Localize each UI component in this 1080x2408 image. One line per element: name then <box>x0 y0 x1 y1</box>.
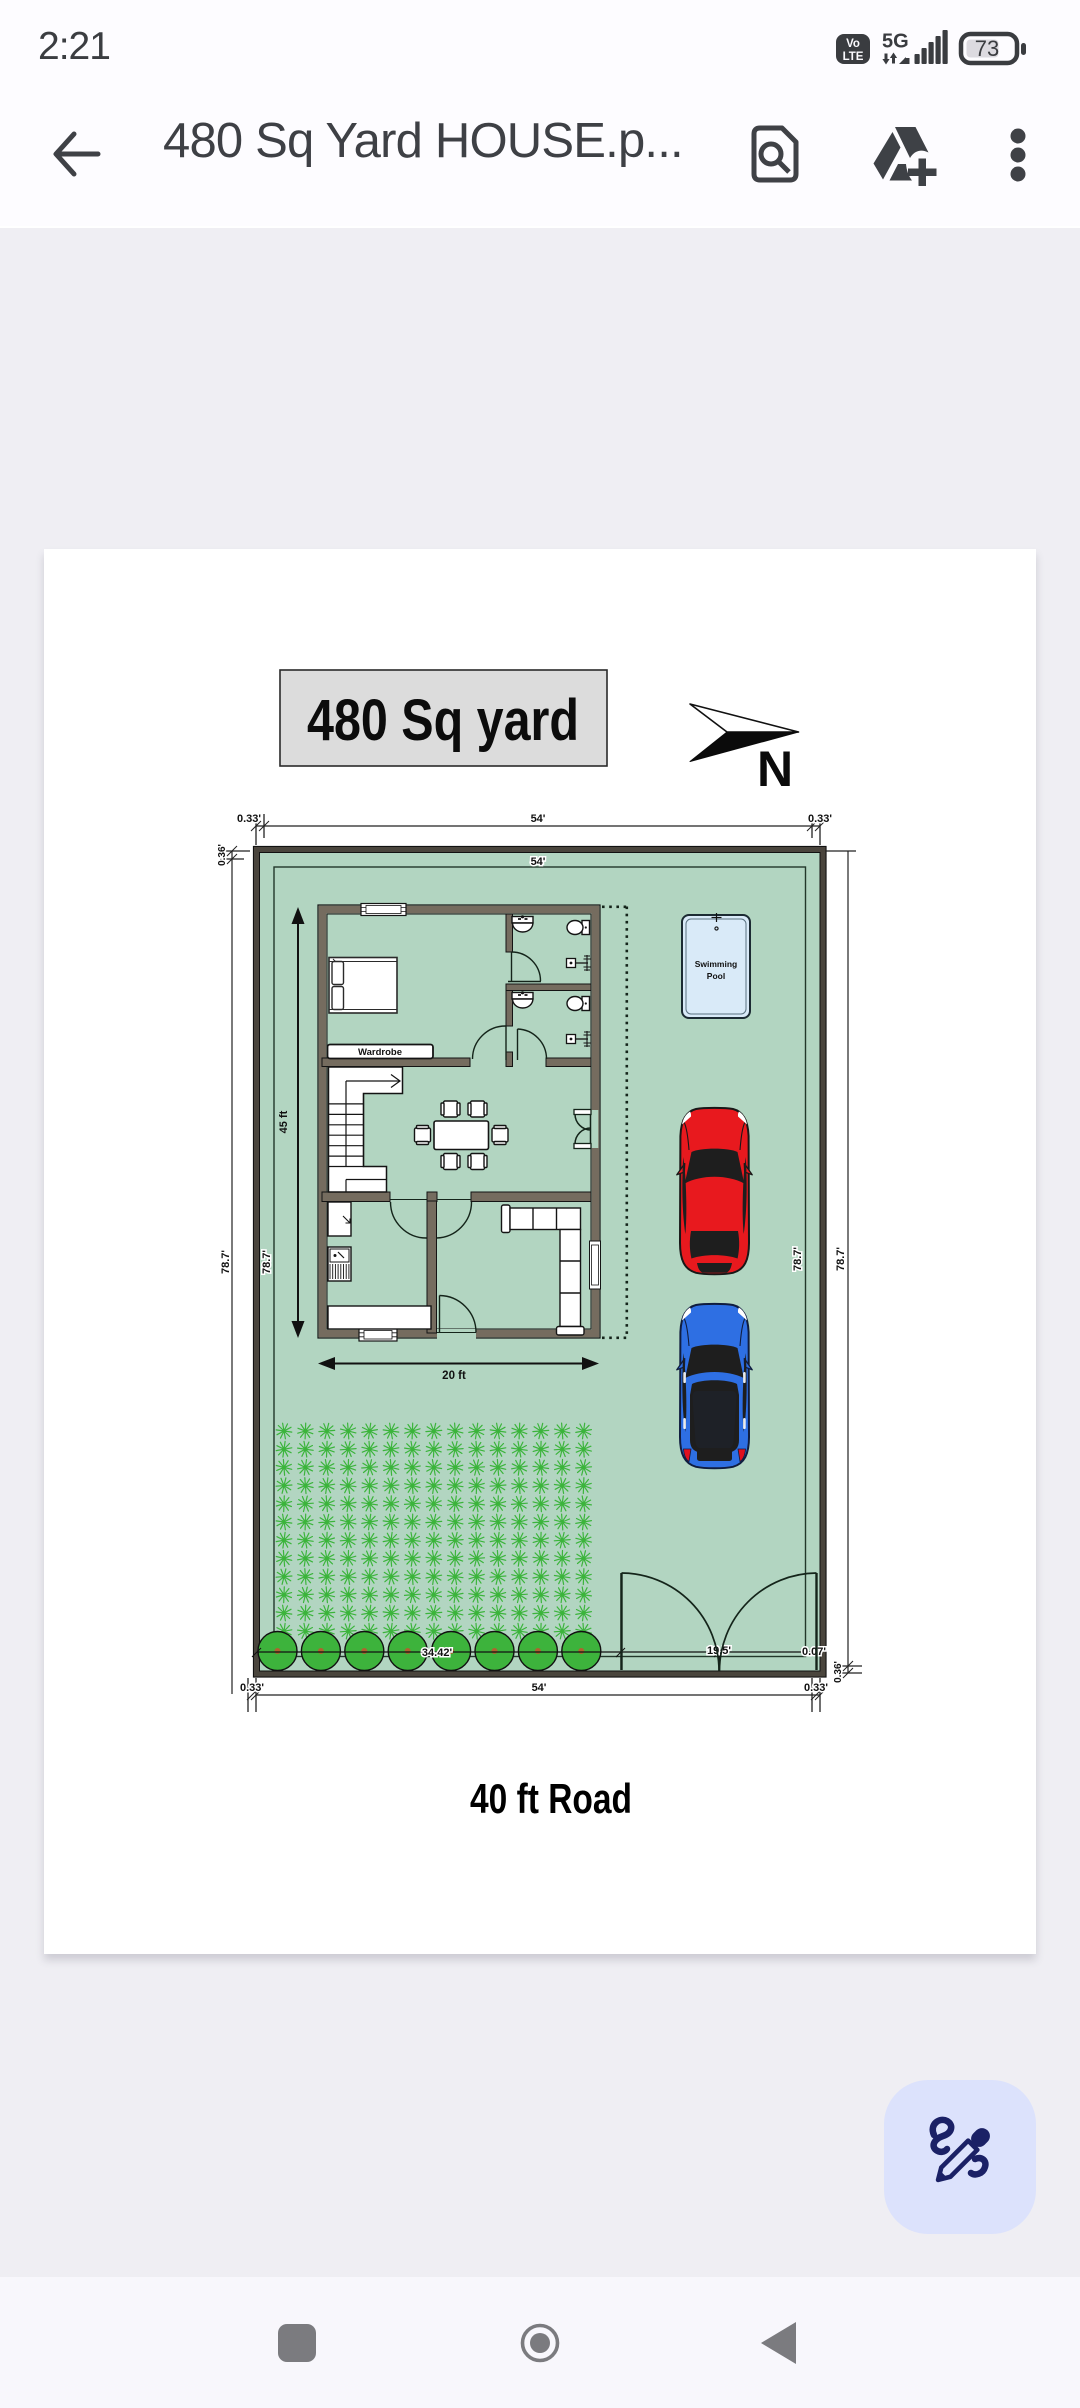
svg-text:54': 54' <box>531 813 546 825</box>
svg-text:78.7': 78.7' <box>792 1247 804 1271</box>
svg-text:78.7': 78.7' <box>220 1250 232 1274</box>
svg-text:78.7': 78.7' <box>261 1250 273 1274</box>
svg-text:0.33': 0.33' <box>237 813 261 825</box>
svg-text:Wardrobe: Wardrobe <box>358 1047 402 1058</box>
svg-text:34.42': 34.42' <box>422 1647 453 1659</box>
svg-text:73: 73 <box>975 36 999 61</box>
svg-text:N: N <box>757 741 793 797</box>
svg-text:Swimming: Swimming <box>695 959 738 969</box>
svg-text:Pool: Pool <box>707 971 725 981</box>
svg-text:0.36': 0.36' <box>217 844 228 866</box>
svg-text:19.5': 19.5' <box>707 1645 731 1657</box>
svg-text:45 ft: 45 ft <box>278 1110 290 1133</box>
svg-text:LTE: LTE <box>843 51 864 63</box>
svg-text:40 ft Road: 40 ft Road <box>470 1775 632 1822</box>
svg-text:Vo: Vo <box>846 38 860 50</box>
svg-text:20 ft: 20 ft <box>442 1370 466 1382</box>
svg-text:78.7': 78.7' <box>835 1247 847 1271</box>
svg-text:0.33': 0.33' <box>804 1682 828 1694</box>
svg-text:0.33': 0.33' <box>808 813 832 825</box>
svg-text:0.07': 0.07' <box>802 1646 826 1658</box>
svg-text:54': 54' <box>531 856 546 868</box>
svg-text:0.36': 0.36' <box>833 1661 844 1683</box>
svg-text:5G: 5G <box>882 31 909 53</box>
svg-text:480 Sq yard: 480 Sq yard <box>307 688 579 753</box>
svg-text:0.33': 0.33' <box>240 1682 264 1694</box>
svg-text:54': 54' <box>532 1682 547 1694</box>
